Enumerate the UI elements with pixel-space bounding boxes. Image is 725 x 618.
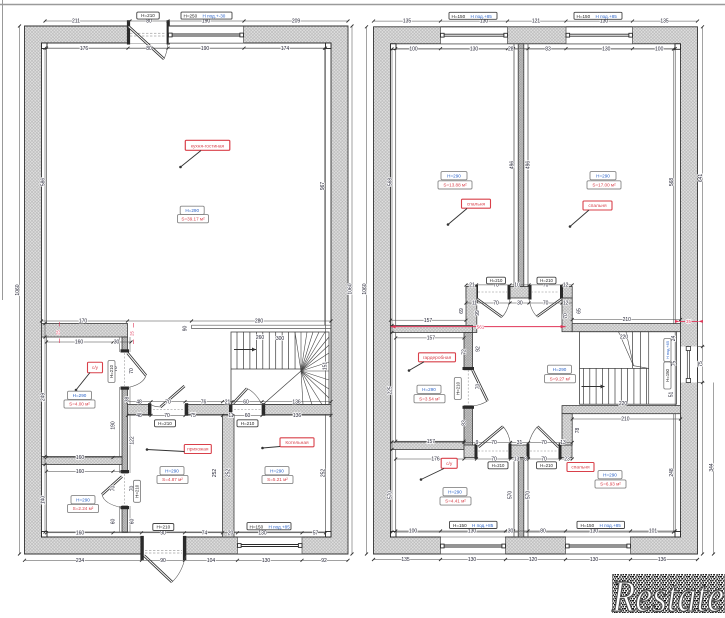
svg-text:H=290: H=290 (596, 173, 610, 178)
svg-text:S=3.54 м²: S=3.54 м² (419, 396, 440, 401)
svg-text:H=210: H=210 (135, 484, 140, 498)
svg-text:1060: 1060 (348, 283, 354, 294)
svg-text:70: 70 (541, 440, 547, 446)
svg-text:136: 136 (658, 557, 667, 563)
svg-text:344: 344 (709, 463, 715, 472)
svg-text:160: 160 (76, 469, 85, 475)
svg-text:120: 120 (529, 557, 538, 563)
svg-text:спальня: спальня (467, 202, 486, 207)
svg-text:104: 104 (207, 558, 216, 564)
svg-text:151: 151 (323, 362, 329, 371)
svg-text:176: 176 (431, 457, 440, 463)
svg-text:160: 160 (76, 530, 85, 536)
svg-text:H=210: H=210 (156, 525, 170, 530)
svg-text:76: 76 (201, 399, 207, 405)
svg-text:H=290: H=290 (422, 387, 436, 392)
svg-text:10: 10 (514, 283, 520, 289)
svg-text:60: 60 (130, 519, 136, 525)
svg-text:75: 75 (672, 361, 678, 367)
svg-text:H=290: H=290 (448, 489, 462, 494)
svg-text:H=150: H=150 (581, 523, 595, 528)
svg-text:135: 135 (401, 557, 410, 563)
svg-text:H=210: H=210 (109, 364, 114, 378)
svg-text:H=290: H=290 (165, 468, 179, 473)
svg-text:160: 160 (75, 340, 84, 346)
svg-text:130: 130 (590, 557, 599, 563)
svg-text:70: 70 (165, 399, 171, 405)
svg-text:S=17.00 м²: S=17.00 м² (592, 183, 616, 188)
svg-text:300: 300 (276, 336, 285, 342)
svg-text:70: 70 (111, 486, 117, 492)
svg-text:H=290: H=290 (447, 173, 461, 178)
svg-text:70: 70 (164, 413, 170, 419)
svg-text:570: 570 (508, 491, 514, 500)
svg-text:23: 23 (564, 457, 570, 463)
svg-text:78: 78 (575, 428, 581, 434)
svg-text:спальня: спальня (588, 204, 607, 209)
svg-text:209: 209 (292, 19, 301, 25)
svg-text:S=2.24 м²: S=2.24 м² (73, 506, 94, 511)
svg-text:496: 496 (510, 161, 516, 170)
svg-text:31: 31 (517, 440, 523, 446)
svg-text:60: 60 (111, 519, 117, 525)
svg-text:H=250: H=250 (184, 14, 198, 19)
svg-text:83: 83 (545, 46, 551, 52)
svg-text:70: 70 (543, 301, 549, 307)
svg-text:72: 72 (462, 349, 468, 355)
svg-text:13: 13 (560, 440, 566, 446)
svg-text:H=150: H=150 (665, 369, 670, 382)
svg-text:13: 13 (514, 457, 520, 463)
svg-text:48: 48 (136, 399, 142, 405)
svg-text:122: 122 (130, 436, 136, 445)
svg-text:130: 130 (470, 46, 479, 52)
svg-text:136: 136 (292, 399, 301, 405)
svg-text:75: 75 (190, 413, 196, 419)
svg-text:с/у: с/у (92, 365, 99, 371)
svg-text:568: 568 (669, 178, 675, 187)
svg-text:H=290: H=290 (185, 208, 199, 213)
svg-text:248: 248 (669, 468, 675, 477)
svg-text:S=13.88 м²: S=13.88 м² (443, 183, 467, 188)
svg-text:75: 75 (698, 361, 704, 367)
svg-text:69: 69 (459, 308, 465, 314)
svg-text:100: 100 (409, 46, 418, 52)
svg-text:170: 170 (79, 319, 88, 325)
svg-text:H=290: H=290 (603, 472, 617, 477)
svg-text:157: 157 (427, 439, 436, 445)
svg-text:H=210: H=210 (455, 381, 460, 395)
svg-text:74: 74 (202, 530, 208, 536)
svg-text:Н под.+85: Н под.+85 (269, 524, 291, 529)
svg-text:57: 57 (313, 530, 319, 536)
svg-text:S=5.21 м²: S=5.21 м² (267, 477, 288, 482)
svg-text:99: 99 (475, 310, 481, 316)
svg-text:210: 210 (621, 417, 630, 423)
svg-text:S=6.93 м²: S=6.93 м² (600, 482, 621, 487)
svg-text:70: 70 (493, 301, 499, 307)
svg-text:12: 12 (563, 301, 569, 307)
svg-text:157: 157 (427, 336, 436, 342)
svg-text:Н под.+85: Н под.+85 (596, 14, 618, 19)
svg-text:21: 21 (225, 399, 231, 405)
svg-text:25: 25 (130, 331, 135, 336)
svg-text:S=9.27 м²: S=9.27 м² (550, 376, 571, 381)
svg-text:S=39.17 м²: S=39.17 м² (181, 216, 205, 221)
svg-text:прихожая: прихожая (187, 448, 209, 453)
svg-text:H=210: H=210 (141, 13, 155, 18)
svg-text:561: 561 (477, 324, 485, 329)
svg-text:225: 225 (388, 386, 394, 395)
svg-text:24: 24 (671, 336, 677, 342)
svg-text:гардеробная: гардеробная (423, 355, 452, 361)
svg-text:H=150: H=150 (250, 524, 264, 529)
svg-text:92: 92 (475, 346, 481, 352)
svg-text:160: 160 (76, 455, 85, 461)
svg-text:8: 8 (524, 457, 527, 463)
svg-text:92: 92 (321, 558, 327, 564)
svg-text:Н под.+85: Н под.+85 (471, 14, 493, 19)
svg-text:H=210: H=210 (492, 463, 505, 468)
svg-text:220: 220 (620, 334, 629, 340)
svg-text:65: 65 (577, 308, 583, 314)
svg-text:Н под.+85: Н под.+85 (472, 523, 494, 528)
svg-text:51: 51 (669, 392, 675, 398)
svg-text:586: 586 (41, 178, 47, 187)
svg-text:H=150: H=150 (453, 523, 467, 528)
svg-text:кухня-гостиная: кухня-гостиная (191, 144, 225, 149)
svg-text:спальня: спальня (571, 466, 590, 471)
svg-text:38: 38 (125, 397, 131, 403)
svg-text:967: 967 (320, 182, 326, 191)
svg-text:190: 190 (111, 421, 117, 430)
svg-text:60: 60 (243, 399, 249, 405)
svg-text:220: 220 (619, 401, 628, 407)
svg-text:90: 90 (183, 326, 189, 332)
svg-text:20: 20 (228, 530, 234, 536)
svg-text:S=4.00 м²: S=4.00 м² (69, 402, 90, 407)
svg-text:130: 130 (258, 530, 267, 536)
svg-text:130: 130 (468, 557, 477, 563)
svg-text:90: 90 (160, 530, 166, 536)
svg-text:80: 80 (146, 46, 152, 52)
svg-text:136: 136 (293, 413, 302, 419)
svg-text:101: 101 (649, 529, 658, 535)
svg-text:Restate: Restate (611, 572, 724, 613)
svg-text:H=290: H=290 (553, 367, 567, 372)
svg-text:H=210: H=210 (540, 463, 553, 468)
svg-text:130: 130 (602, 46, 611, 52)
svg-text:641: 641 (698, 174, 704, 183)
svg-text:9: 9 (476, 440, 479, 446)
svg-text:H=290: H=290 (270, 468, 284, 473)
svg-text:H=210: H=210 (540, 278, 553, 283)
svg-text:280: 280 (255, 319, 264, 325)
svg-text:H=290: H=290 (76, 497, 90, 502)
svg-text:12: 12 (563, 283, 569, 289)
svg-text:252: 252 (226, 469, 232, 478)
svg-text:210: 210 (623, 317, 632, 323)
svg-text:с/у: с/у (446, 461, 453, 467)
svg-text:60: 60 (245, 413, 251, 419)
svg-text:S=4.41 м²: S=4.41 м² (445, 499, 466, 504)
svg-text:70: 70 (563, 313, 569, 319)
svg-text:S=4.87 м²: S=4.87 м² (162, 477, 183, 482)
svg-text:H=150: H=150 (577, 14, 591, 19)
svg-text:176: 176 (80, 46, 89, 52)
svg-text:211: 211 (72, 19, 80, 25)
svg-text:H=150: H=150 (452, 14, 466, 19)
svg-text:570: 570 (388, 491, 394, 500)
svg-text:Н под.+-30: Н под.+-30 (203, 14, 226, 19)
svg-text:249: 249 (41, 393, 47, 402)
svg-text:570: 570 (526, 491, 532, 500)
svg-text:11: 11 (472, 301, 477, 307)
svg-text:70: 70 (491, 440, 497, 446)
svg-text:48: 48 (136, 413, 142, 419)
svg-text:11: 11 (228, 413, 233, 419)
svg-text:Н под.+85: Н под.+85 (665, 341, 670, 359)
svg-text:H=290: H=290 (73, 393, 87, 398)
svg-text:83: 83 (462, 420, 468, 426)
svg-text:H=210: H=210 (158, 421, 172, 426)
svg-text:28: 28 (508, 46, 514, 52)
svg-text:252: 252 (321, 469, 327, 478)
svg-text:100: 100 (409, 529, 418, 535)
svg-text:140: 140 (41, 496, 47, 505)
svg-text:21: 21 (469, 283, 475, 289)
svg-text:30: 30 (114, 340, 120, 346)
svg-text:234: 234 (76, 558, 85, 564)
svg-text:568: 568 (388, 178, 394, 187)
svg-text:70: 70 (129, 368, 135, 374)
svg-text:90: 90 (160, 558, 166, 564)
svg-text:30: 30 (517, 301, 523, 307)
svg-text:157: 157 (424, 318, 433, 324)
svg-text:135: 135 (403, 19, 412, 25)
svg-text:H=210: H=210 (241, 421, 255, 426)
svg-text:35: 35 (686, 319, 691, 324)
svg-text:130: 130 (468, 529, 477, 535)
svg-text:H=210: H=210 (490, 278, 503, 283)
svg-text:496: 496 (525, 161, 531, 170)
svg-text:1060: 1060 (362, 283, 368, 294)
svg-text:135: 135 (660, 19, 669, 25)
svg-text:252: 252 (212, 469, 218, 478)
svg-text:30: 30 (508, 529, 514, 535)
svg-text:Котельная: Котельная (285, 440, 309, 446)
svg-text:80: 80 (540, 529, 546, 535)
svg-text:100: 100 (655, 46, 664, 52)
svg-text:121: 121 (532, 19, 541, 25)
svg-text:1060: 1060 (15, 284, 21, 295)
svg-text:Н под.+85: Н под.+85 (600, 523, 622, 528)
svg-text:130: 130 (590, 529, 599, 535)
svg-text:174: 174 (281, 46, 290, 52)
svg-text:130: 130 (262, 558, 271, 564)
svg-text:25: 25 (56, 330, 61, 335)
svg-text:260: 260 (256, 335, 265, 341)
svg-text:70: 70 (475, 384, 481, 390)
svg-text:190: 190 (201, 46, 210, 52)
